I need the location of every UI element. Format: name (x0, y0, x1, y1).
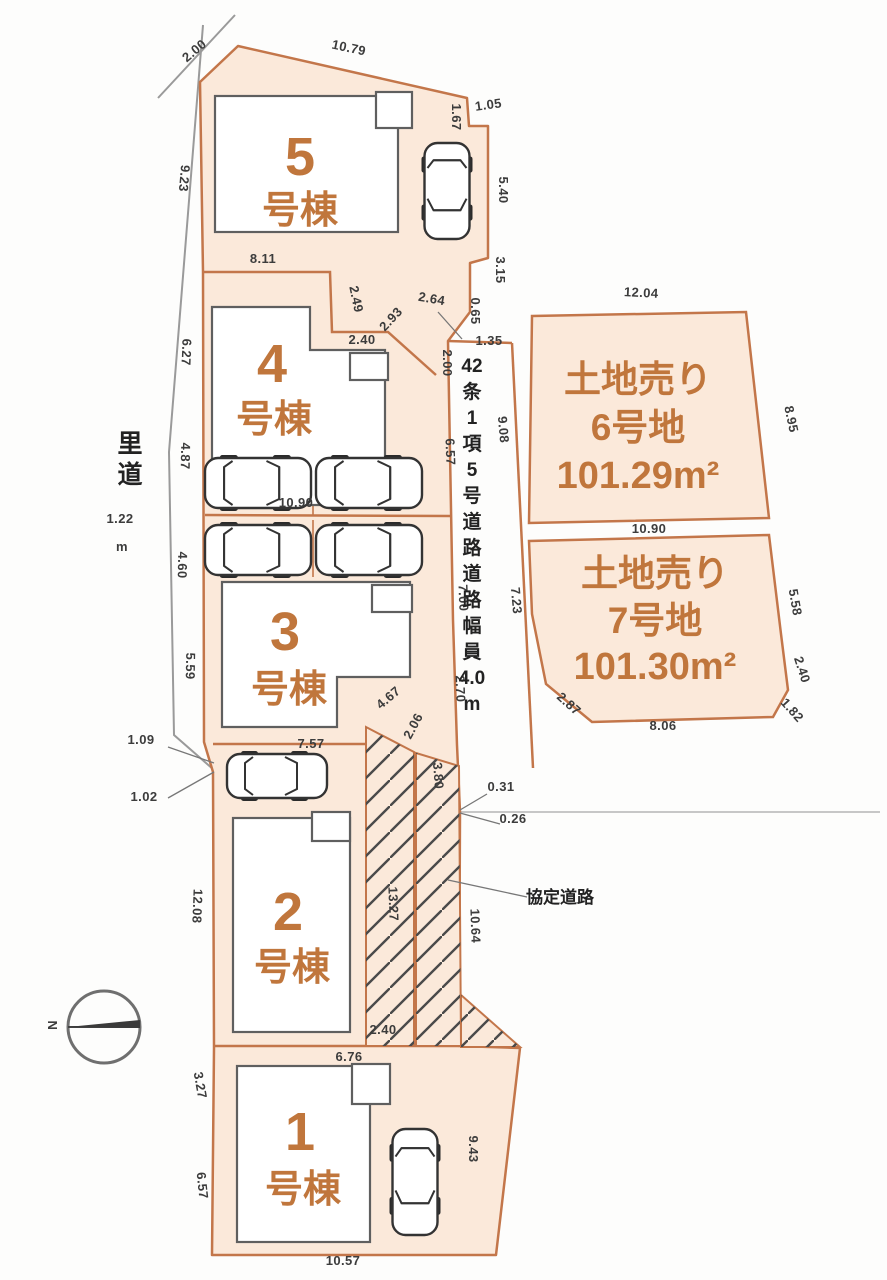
road-designation-char: 項 (462, 433, 482, 455)
dimension-label: 10.79 (330, 37, 367, 59)
building-suffix-label: 号棟 (265, 1169, 342, 1211)
car-icon (205, 522, 311, 578)
dimension-label: 6.76 (336, 1049, 363, 1064)
dimension-label: 9.23 (176, 164, 193, 192)
dimension-label: 2.40 (349, 332, 376, 347)
dimension-label: 0.26 (500, 811, 527, 826)
dimension-label: 10.57 (326, 1253, 361, 1268)
dimension-label: 3.27 (191, 1071, 210, 1100)
road-designation-char: 員 (462, 641, 481, 663)
dimension-label: 1.67 (449, 104, 464, 131)
building-number-label: 1 (285, 1102, 315, 1162)
dimension-label: 12.04 (624, 284, 660, 301)
dimension-label: 2.40 (791, 654, 814, 684)
road-designation-char: 42 (461, 356, 482, 377)
dimension-label: 3.15 (493, 257, 508, 284)
road-designation-char: 道 (462, 562, 481, 585)
kyotei-road-label: 協定道路 (526, 887, 595, 907)
dimension-label: 7.23 (508, 587, 525, 615)
building-suffix-label: 号棟 (254, 947, 331, 989)
dimension-label: 2.00 (179, 36, 209, 65)
dimension-label: 6.57 (194, 1171, 212, 1199)
satodou-unit-label: m (116, 539, 128, 554)
building-suffix-label: 号棟 (251, 669, 328, 711)
dimension-label: 0.65 (468, 298, 483, 325)
dimension-label: 5.40 (496, 177, 511, 204)
building-4-annex (350, 353, 388, 380)
dimension-label: 8.11 (250, 251, 276, 266)
dimension-label: 4.60 (175, 551, 190, 578)
dimension-label: 1.35 (476, 333, 503, 348)
dimension-label: 6.27 (179, 338, 195, 365)
dimension-label: 13.27 (385, 886, 401, 921)
building-number-label: 4 (257, 334, 287, 394)
dimension-label: 5.59 (183, 652, 198, 679)
road-designation-char: 条 (462, 380, 482, 403)
car-icon (316, 522, 422, 578)
satodou-char: 道 (117, 460, 142, 489)
building-number-label: 5 (285, 127, 315, 187)
lot-7-label: 101.30m² (574, 646, 737, 688)
car-icon (390, 1129, 441, 1235)
site-plan-drawing: 2.0010.791.671.055.403.150.652.641.352.0… (0, 0, 887, 1280)
road-designation-char: 幅 (462, 614, 481, 637)
satodou-width-label: 1.22 (107, 511, 134, 526)
building-1-annex (352, 1064, 390, 1104)
dimension-label: 9.08 (495, 416, 512, 444)
building-suffix-label: 号棟 (236, 399, 313, 441)
building-suffix-label: 号棟 (262, 190, 339, 232)
dimension-label: 5.58 (786, 588, 805, 617)
dimension-label: 12.08 (189, 889, 205, 924)
dimension-label: 2.40 (370, 1022, 397, 1037)
site-plan-canvas: 2.0010.791.671.055.403.150.652.641.352.0… (0, 0, 887, 1280)
lot-7-label: 7号地 (608, 600, 703, 641)
dimension-label: 8.95 (781, 404, 801, 433)
dimension-label: 1.02 (131, 789, 158, 804)
road-designation-char: 5 (467, 460, 478, 481)
lot-7-label: 土地売り (581, 553, 729, 594)
dimension-label: 2.00 (440, 350, 455, 377)
dimension-label: 10.90 (279, 495, 314, 510)
road-designation-char: 号 (462, 485, 481, 507)
car-icon (227, 751, 327, 801)
road-designation-char: 路 (462, 588, 482, 611)
dimension-label: 0.31 (488, 779, 515, 794)
lot-6-label: 6号地 (591, 407, 686, 448)
road-designation-char: 路 (462, 536, 482, 559)
car-icon (422, 143, 473, 239)
building-number-label: 2 (273, 882, 303, 942)
road-designation-char: m (464, 694, 481, 715)
north-label: N (45, 1020, 60, 1030)
dimension-label: 6.57 (443, 438, 459, 465)
dimension-label: 1.09 (128, 732, 155, 747)
road-designation-char: 道 (462, 510, 481, 533)
dimension-label: 10.90 (632, 521, 667, 536)
dimension-label: 7.57 (298, 736, 325, 751)
car-icon (316, 455, 422, 511)
compass-icon (68, 991, 140, 1063)
building-3-annex (372, 585, 412, 612)
dimension-label: 9.43 (466, 1136, 481, 1163)
dimension-label: 4.87 (178, 442, 193, 469)
dimension-label: 3.80 (430, 762, 447, 790)
building-5-annex (376, 92, 412, 128)
dimension-label: 10.64 (467, 908, 483, 943)
road-designation-char: 4.0 (459, 668, 485, 689)
road-designation-char: 1 (467, 408, 478, 429)
satodou-char: 里 (117, 430, 142, 458)
dimension-label: 8.06 (650, 718, 677, 733)
building-number-label: 3 (270, 602, 300, 662)
lot-6-label: 土地売り (564, 359, 712, 400)
building-2-annex (312, 812, 350, 841)
lot-6-label: 101.29m² (557, 455, 720, 497)
dimension-label: 1.05 (474, 95, 503, 114)
